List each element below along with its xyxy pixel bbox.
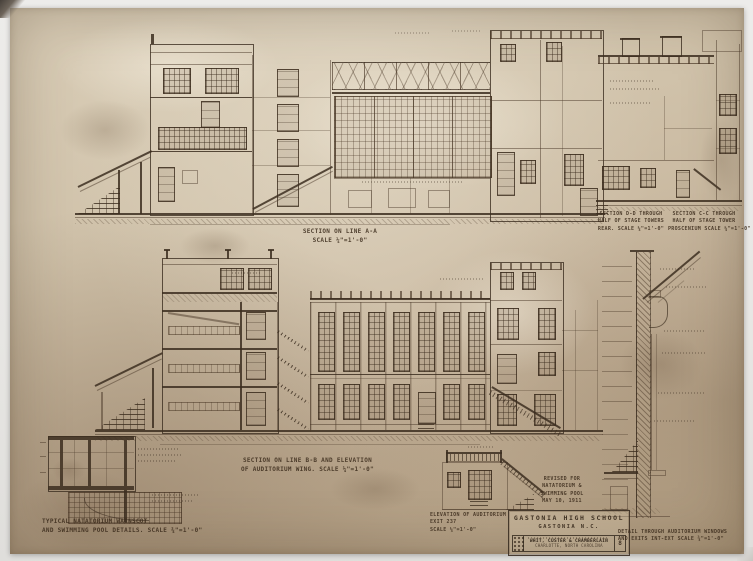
door — [497, 152, 515, 196]
tick-mark — [40, 442, 46, 443]
roof-finial — [225, 249, 231, 251]
revision-line: MAY 10, 1911 — [516, 498, 608, 505]
floor-joists — [168, 326, 240, 335]
floor-joists — [168, 402, 240, 411]
tall-window — [443, 312, 460, 372]
paper-stain — [52, 458, 86, 482]
window — [640, 168, 656, 188]
caption-natatorium: TYPICAL NATATORIUM WAINSCOT AND SWIMMING… — [42, 517, 212, 536]
handwritten-note — [660, 268, 696, 270]
title-block: GASTONIA HIGH SCHOOL GASTONIA N.C. WHIT,… — [508, 510, 630, 556]
stair-flight — [277, 356, 309, 378]
base-line — [310, 424, 490, 425]
chimney-cap — [660, 36, 682, 38]
handwritten-note — [610, 80, 654, 82]
caption-line: SECTION C-C THROUGH — [668, 211, 740, 218]
handwritten-note — [138, 460, 176, 462]
parapet-line — [150, 52, 252, 53]
roof-finial — [151, 34, 154, 44]
roof-finial — [270, 250, 272, 259]
handwritten-note — [232, 272, 262, 274]
paper-stain — [620, 328, 702, 400]
handwritten-note — [152, 500, 194, 502]
wall-line — [277, 302, 278, 432]
cornice-line — [150, 64, 252, 65]
radiator — [388, 188, 416, 208]
floor-line — [716, 100, 740, 101]
floor-line — [252, 97, 330, 98]
parapet — [490, 263, 562, 270]
wall-line — [716, 40, 717, 200]
caption-line: HALF OF STAGE TOWERS — [596, 218, 666, 225]
window — [318, 384, 335, 420]
column-line — [449, 178, 450, 214]
window — [564, 154, 584, 186]
basement-line — [160, 444, 480, 445]
handwritten-note — [658, 392, 704, 394]
caption-section-dd: SECTION D-D THROUGH HALF OF STAGE TOWERS… — [596, 211, 666, 233]
stair-flight — [277, 382, 309, 404]
tall-window — [368, 312, 385, 372]
ground-line — [596, 200, 742, 202]
handwritten-note — [662, 352, 706, 354]
architect-strip: WHIT, CUSTER & CHAMBERLAIN CHARLOTTE, NO… — [512, 535, 626, 552]
window — [602, 166, 630, 190]
door-steps — [470, 500, 488, 506]
basement-line — [150, 224, 450, 225]
handwritten-note — [666, 286, 708, 288]
wainscot-base — [48, 486, 134, 490]
handwritten-note — [440, 278, 485, 280]
floor-line — [150, 97, 252, 98]
caption-line: REAR. SCALE ¼"=1'-0" — [596, 226, 666, 233]
tall-window — [468, 312, 485, 372]
roof-finial — [268, 249, 274, 251]
caption-section-bb: SECTION ON LINE B-B AND ELEVATION OF AUD… — [200, 456, 415, 475]
floor-line — [150, 151, 252, 152]
cornice-profile — [649, 296, 668, 328]
wall-cap — [630, 250, 654, 252]
caption-line: SECTION D-D THROUGH — [596, 211, 666, 218]
leader-line — [562, 370, 598, 371]
door — [246, 352, 266, 380]
wainscot-post — [88, 440, 91, 486]
revision-line: NATATORIUM & — [516, 483, 608, 490]
floor-line — [490, 344, 562, 345]
door — [497, 354, 517, 384]
tall-window — [393, 312, 410, 372]
window — [205, 68, 239, 94]
wall-line — [597, 300, 598, 430]
floor-line — [598, 160, 714, 161]
floor-line — [490, 100, 602, 101]
door — [277, 69, 299, 97]
caption-line: AND SWIMMING POOL DETAILS. SCALE ¾"=1'-0… — [42, 526, 212, 535]
caption-window-detail: DETAIL THROUGH AUDITORIUM WINDOWS AND EX… — [618, 529, 744, 544]
window — [500, 272, 514, 290]
window-sill — [648, 470, 666, 476]
dimension-ticks — [602, 252, 632, 402]
parapet-line — [162, 264, 277, 265]
dimension-note — [452, 30, 480, 32]
porch-post — [152, 368, 154, 428]
panel-line — [106, 440, 107, 486]
cornice-band — [598, 57, 714, 64]
ground-line — [95, 434, 603, 435]
floor-line — [716, 148, 740, 149]
tall-window — [418, 312, 435, 372]
window-frame-line — [656, 334, 657, 470]
door — [676, 170, 690, 198]
handwritten-note — [664, 330, 704, 332]
architect-strip-header — [528, 537, 608, 539]
architect-location: CHARLOTTE, NORTH CAROLINA — [524, 544, 614, 549]
window — [719, 128, 737, 154]
dimension-note — [395, 32, 431, 34]
cornice-band — [162, 294, 277, 302]
stair-flight — [277, 408, 309, 430]
roof-finial — [166, 250, 168, 259]
window-frame-line — [651, 334, 652, 470]
porch-post — [118, 170, 120, 214]
project-name: GASTONIA HIGH SCHOOL — [509, 514, 629, 524]
window — [497, 308, 519, 340]
floor-line — [252, 130, 330, 131]
caption-line: SECTION ON LINE A-A — [270, 227, 410, 236]
caption-line: OF AUDITORIUM WING. SCALE ¼"=1'-0" — [200, 465, 415, 474]
column-line — [371, 178, 372, 214]
cornice-line — [310, 298, 490, 300]
cornice-line — [490, 300, 562, 301]
handwritten-note — [610, 102, 650, 104]
window — [447, 472, 461, 488]
window — [343, 384, 360, 420]
ground-line — [596, 205, 742, 206]
leader-line — [562, 330, 598, 331]
window — [522, 272, 536, 290]
handwritten-note — [362, 181, 462, 183]
window — [719, 94, 737, 116]
revision-line: REVISED FOR — [516, 476, 608, 483]
door — [277, 104, 299, 132]
revision-line: SWIMMING POOL — [516, 491, 608, 498]
window — [368, 384, 385, 420]
handwritten-note — [610, 88, 660, 90]
wall-opening — [182, 170, 198, 184]
door — [158, 167, 175, 202]
porch-post — [101, 392, 103, 430]
chimney-cap — [620, 38, 640, 40]
radiator — [428, 190, 450, 208]
chimney — [622, 38, 640, 57]
caption-line: HALF OF STAGE TOWER — [668, 218, 740, 225]
door — [201, 101, 220, 128]
wall-line — [330, 60, 331, 215]
caption-line: SCALE ¼"=1'-0" — [270, 236, 410, 245]
wainscot-post — [124, 440, 127, 486]
project-location: GASTONIA N.C. — [509, 524, 629, 532]
roof-finial — [164, 249, 170, 251]
window — [538, 352, 556, 376]
wall-line — [562, 46, 563, 216]
handwritten-note — [138, 454, 182, 456]
radiator — [348, 190, 372, 208]
floor-line — [252, 165, 330, 166]
door — [277, 139, 299, 167]
caption-section-cc: SECTION C-C THROUGH HALF OF STAGE TOWER … — [668, 211, 740, 233]
wall-line — [252, 55, 253, 215]
window-band — [158, 127, 247, 150]
title-block-seal — [513, 536, 524, 551]
wall-line — [664, 128, 712, 129]
caption-line: SECTION ON LINE B-B AND ELEVATION — [200, 456, 415, 465]
parapet-block — [702, 30, 742, 52]
tall-window — [318, 312, 335, 372]
window — [163, 68, 191, 94]
roof-truss — [332, 62, 490, 90]
wall-line — [739, 44, 740, 200]
stair-flight — [277, 330, 309, 352]
photo-background: { "colors": { "paper": "#cbbca4", "ink":… — [0, 0, 753, 561]
column-line — [410, 178, 411, 214]
column — [240, 302, 242, 430]
porch-steps — [78, 186, 120, 214]
roof-finial — [227, 250, 229, 259]
caption-line: TYPICAL NATATORIUM WAINSCOT — [42, 517, 212, 526]
door — [246, 392, 266, 426]
window — [520, 160, 536, 184]
porch-post — [140, 162, 142, 214]
panel-line — [48, 452, 134, 453]
handwritten-note — [152, 494, 198, 496]
wall-line — [540, 40, 541, 218]
sill-line — [334, 178, 490, 179]
window — [538, 308, 556, 340]
handwritten-note — [654, 420, 694, 422]
ceiling-line — [332, 92, 490, 94]
entrance-door — [418, 392, 436, 424]
porch-steps — [95, 398, 145, 430]
floor-line — [162, 348, 277, 350]
chimney — [662, 36, 682, 57]
caption-line: PROSCENIUM SCALE ¼"=1'-0" — [668, 226, 740, 233]
caption-line: DETAIL THROUGH AUDITORIUM WINDOWS — [618, 529, 744, 536]
window — [468, 384, 485, 420]
handwritten-note — [138, 448, 178, 450]
window — [546, 42, 562, 62]
door — [246, 312, 266, 340]
tick-mark — [40, 472, 46, 473]
paper-stain — [60, 100, 150, 160]
floor-joists — [168, 364, 240, 373]
spandrel-line — [310, 378, 490, 379]
ground-line — [442, 509, 516, 510]
hall-window-wall — [334, 96, 492, 178]
railing-balusters — [446, 454, 502, 461]
handwritten-note — [468, 446, 494, 448]
floor-line — [490, 148, 602, 149]
glazed-door — [468, 470, 492, 500]
ground-hatch — [95, 436, 600, 441]
window — [443, 384, 460, 420]
floor-line — [162, 386, 277, 388]
architect-block: WHIT, CUSTER & CHAMBERLAIN CHARLOTTE, NO… — [524, 536, 614, 551]
revision-note: REVISED FOR NATATORIUM & SWIMMING POOL M… — [516, 476, 608, 505]
caption-section-aa: SECTION ON LINE A-A SCALE ¼"=1'-0" — [270, 227, 410, 246]
window — [500, 44, 516, 62]
caption-line: AND EXITS INT-EXT SCALE ¾"=1'-0" — [618, 536, 744, 543]
window — [393, 384, 410, 420]
tick-mark — [40, 456, 46, 457]
parapet — [490, 31, 602, 39]
drawing-art: SECTION ON LINE A-A SCALE ¼"=1'-0" SECTI… — [0, 0, 753, 561]
tall-window — [343, 312, 360, 372]
spandrel-line — [310, 374, 490, 375]
